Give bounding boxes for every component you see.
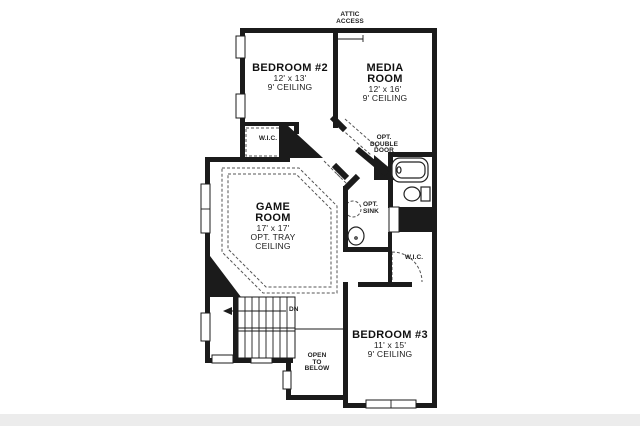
opt-double-door-label: OPT. DOUBLE DOOR bbox=[364, 135, 404, 155]
wic-bedroom3-label: W.I.C. bbox=[394, 255, 434, 262]
wall-stairs-left bbox=[233, 297, 238, 358]
media-room-label: MEDIA ROOM 12' x 16' 9' CEILING bbox=[345, 63, 425, 103]
wall-diagonal-stairs bbox=[207, 252, 241, 297]
open-to-below-label: OPEN TO BELOW bbox=[297, 353, 337, 373]
sink bbox=[348, 227, 364, 245]
stairs-direction-arrowhead bbox=[223, 307, 232, 315]
window-bedroom2-upper bbox=[236, 36, 245, 58]
toilet-bowl bbox=[404, 187, 420, 201]
attic-access-line2: ACCESS bbox=[325, 19, 375, 26]
stairs-outline bbox=[238, 297, 295, 358]
window-gameroom-double bbox=[201, 184, 210, 233]
attic-access-label: ATTIC ACCESS bbox=[325, 12, 375, 25]
wall-openbelow-bottom bbox=[286, 395, 348, 400]
wall-top-exterior bbox=[240, 28, 437, 33]
wall-vanity-left bbox=[343, 186, 348, 252]
bedroom2-ceiling: 9' CEILING bbox=[240, 83, 340, 92]
game-room-label: GAME ROOM 17' x 17' OPT. TRAY CEILING bbox=[223, 202, 323, 251]
floor-plan-image: ATTIC ACCESS BEDROOM #2 12' x 13' 9' CEI… bbox=[0, 0, 640, 426]
wic-bedroom2-label: W.I.C. bbox=[248, 136, 288, 143]
wall-bedroom3-top bbox=[358, 282, 412, 287]
bathtub-faucet bbox=[397, 167, 401, 173]
wic-bedroom3-text: W.I.C. bbox=[394, 255, 434, 262]
door-jamb-gameroom bbox=[334, 165, 347, 178]
wall-plumbing bbox=[398, 207, 432, 232]
bedroom2-label: BEDROOM #2 12' x 13' 9' CEILING bbox=[240, 63, 340, 92]
game-room-ceiling-line2: CEILING bbox=[223, 242, 323, 251]
window-openbelow bbox=[283, 371, 291, 389]
page-bottom-strip bbox=[0, 414, 640, 426]
window-bottom-left-1 bbox=[212, 355, 233, 363]
wall-gameroom-top bbox=[205, 157, 290, 162]
stairs-down-label: DN bbox=[289, 307, 309, 314]
toilet-tank bbox=[421, 187, 430, 201]
window-bedroom2-lower bbox=[236, 94, 245, 118]
open-to-below-line3: BELOW bbox=[297, 366, 337, 373]
opt-double-door-line3: DOOR bbox=[364, 148, 404, 155]
opt-sink-line2: SINK bbox=[363, 209, 389, 216]
door-cased-opening bbox=[389, 207, 399, 232]
stairs-down-text: DN bbox=[289, 307, 309, 314]
sink-drain bbox=[355, 237, 357, 239]
staircase bbox=[223, 297, 343, 358]
attic-access-mark bbox=[334, 35, 363, 42]
window-gameroom-lower bbox=[201, 313, 210, 341]
wall-vanity-bottom bbox=[343, 247, 390, 252]
wic-bedroom2-text: W.I.C. bbox=[248, 136, 288, 143]
wall-wic3-left bbox=[388, 232, 392, 285]
bedroom3-ceiling: 9' CEILING bbox=[340, 350, 440, 359]
media-room-ceiling: 9' CEILING bbox=[345, 94, 425, 103]
opt-sink-label: OPT. SINK bbox=[363, 202, 389, 215]
wall-wic2-top bbox=[240, 122, 296, 126]
bedroom3-label: BEDROOM #3 11' x 15' 9' CEILING bbox=[340, 330, 440, 359]
